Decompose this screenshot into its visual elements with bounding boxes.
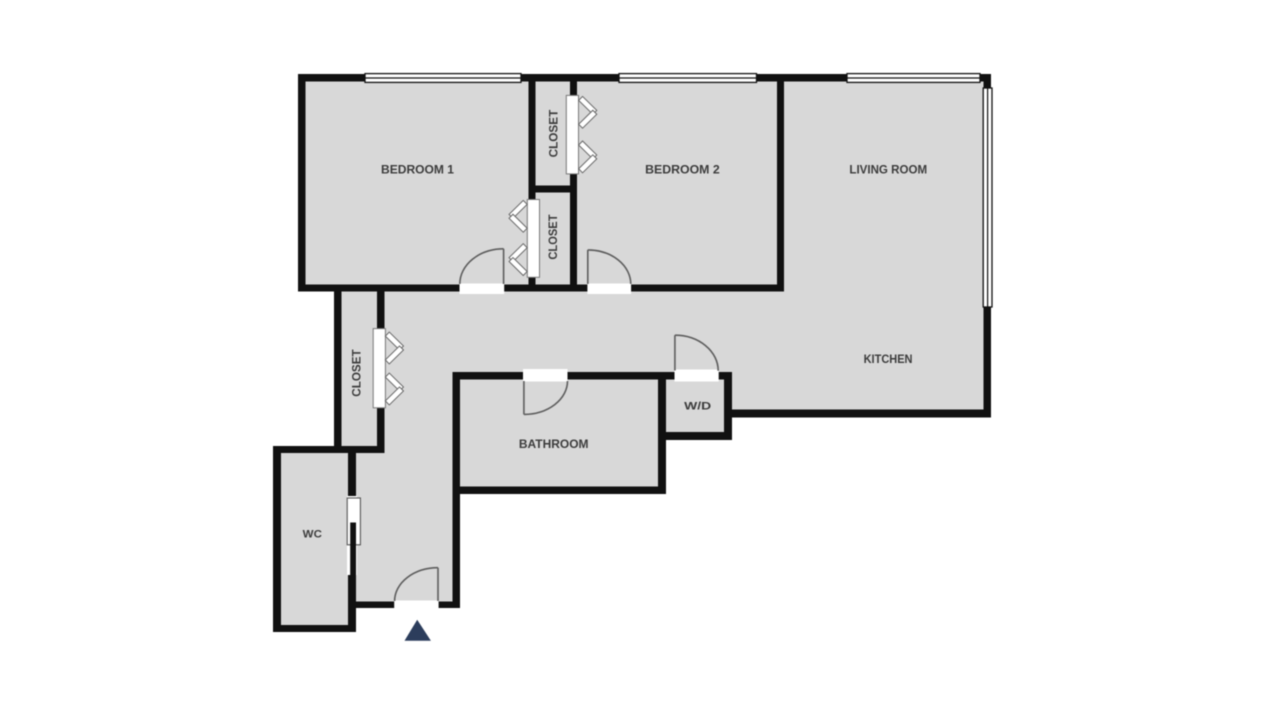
svg-text:CLOSET: CLOSET [546,109,560,157]
svg-text:CLOSET: CLOSET [350,349,364,397]
svg-text:KITCHEN: KITCHEN [864,352,913,366]
svg-text:BEDROOM 1: BEDROOM 1 [381,162,454,176]
svg-text:BATHROOM: BATHROOM [519,437,589,451]
svg-text:BEDROOM 2: BEDROOM 2 [645,162,720,176]
svg-text:CLOSET: CLOSET [546,214,560,260]
svg-text:W/D: W/D [684,400,711,412]
svg-text:WC: WC [303,529,322,541]
svg-text:LIVING ROOM: LIVING ROOM [849,162,927,176]
